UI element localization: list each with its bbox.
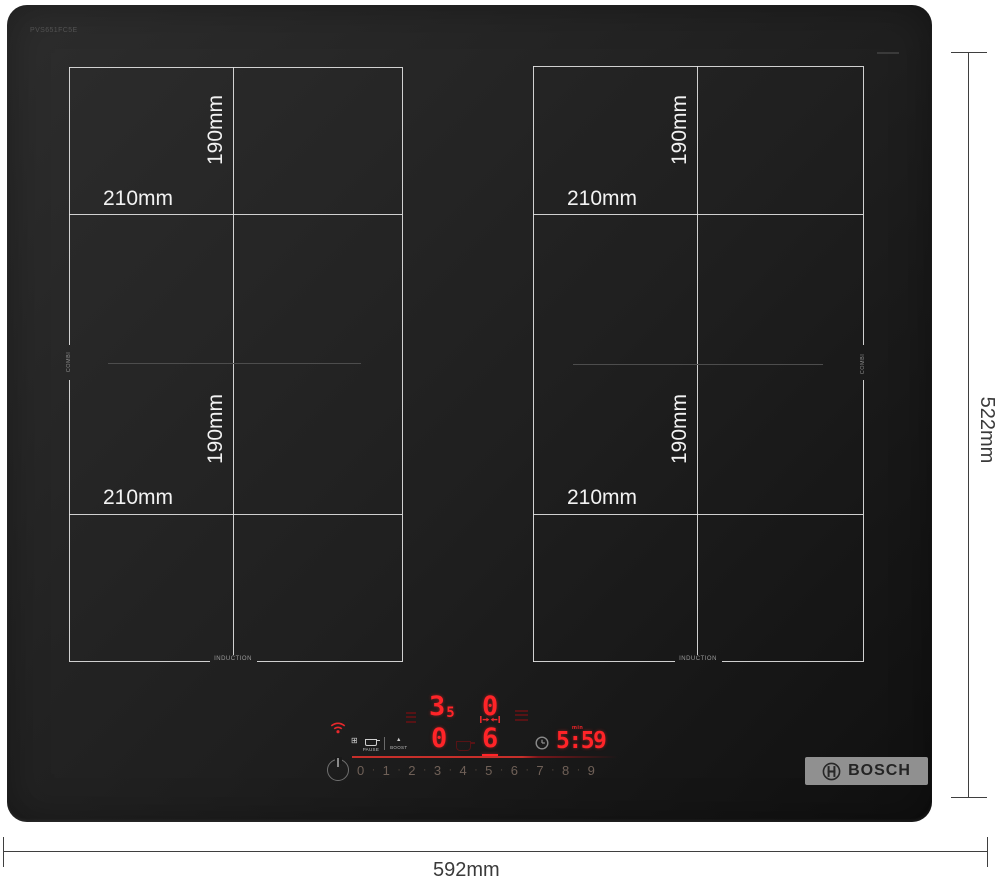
pan-detection-icon [456,741,471,751]
zone-right-bottom-edge-2 [722,661,863,662]
slider-number: 5 [485,763,492,778]
display-front-left-value: 0 [431,725,447,752]
slider-number: 8 [562,763,569,778]
combi-label-right: COMBI [858,349,868,379]
zone-right-center-line [697,66,698,655]
slider-dot: · [474,764,478,776]
zone-left-bottom-edge-2 [257,661,402,662]
slider-number: 6 [511,763,518,778]
slider-number: 1 [383,763,390,778]
slider-number: 4 [460,763,467,778]
zone-front-right-midline [533,514,863,515]
width-dimension-tick-right [987,837,988,867]
combi-bridge-icon [479,715,501,724]
display-rear-left-value: 3 [429,693,445,720]
zone-left-left-edge-upper [69,67,70,345]
clock-icon [535,736,549,750]
zone-left-bottom-edge-1 [69,661,210,662]
zone-rear-left-width-label: 210mm [103,187,173,211]
heat-indicator-left [406,712,416,723]
depth-dimension-line [968,52,969,798]
zone-rear-left-midline [69,214,402,215]
slider-dot: · [372,764,376,776]
slider-dot: · [423,764,427,776]
model-code: PVS651FC5E [30,27,78,34]
function-key-group: ⊞ PAUSE ▲ BOOST [351,736,407,752]
zone-right-right-edge-lower [863,380,864,662]
overall-depth-label: 522mm [975,392,999,468]
zone-rear-left-depth-label: 190mm [204,94,228,166]
zone-left-right-edge [402,67,403,662]
zone-front-right-depth-label: 190mm [668,393,692,465]
display-front-right: 6 [482,725,498,752]
zone-rear-right-width-label: 210mm [567,187,637,211]
zone-right-combi-separator [573,364,823,365]
display-front-right-value: 6 [482,725,498,752]
depth-dimension-tick-bottom [951,797,987,798]
grid-icon: ⊞ [351,736,358,745]
faint-engraving-mark [877,52,899,54]
zone-front-right-width-label: 210mm [567,486,637,510]
power-slider: 0·1·2·3·4·5·6·7·8·9 [357,761,595,779]
width-dimension-line [3,851,988,852]
induction-label-right: INDUCTION [665,656,731,662]
display-rear-left-half-step: 5 [446,706,454,720]
power-icon [327,759,349,781]
slider-number: 9 [588,763,595,778]
control-panel-accent-line [352,756,618,758]
display-rear-left: 3 5 [429,693,455,720]
slider-number: 7 [536,763,543,778]
zone-left-left-edge-lower [69,380,70,661]
wifi-icon [329,720,347,734]
zone-front-left-midline [69,514,402,515]
zone-front-left-depth-label: 190mm [204,393,228,465]
depth-dimension-tick-top [951,52,987,53]
display-front-left: 0 [431,725,447,752]
boost-icon: ▲ [396,736,401,744]
slider-number: 2 [408,763,415,778]
zone-front-left-width-label: 210mm [103,486,173,510]
pause-label: PAUSE [363,747,379,752]
heat-indicator-right [515,710,528,721]
induction-label-left: INDUCTION [200,656,266,662]
slider-dot: · [551,764,555,776]
zone-right-right-edge-upper [863,66,864,345]
pan-icon [365,739,377,746]
timer-display: 5:59 [556,730,605,753]
slider-dot: · [525,764,529,776]
boost-label: BOOST [390,745,407,750]
combi-label-left: COMBI [64,347,74,377]
bosch-symbol-icon [822,762,841,781]
zone-left-top-edge [69,67,402,68]
function-divider [384,737,385,750]
slider-dot: · [397,764,401,776]
width-dimension-tick-left [3,837,4,867]
overall-width-label: 592mm [433,859,500,882]
zone-right-left-edge [533,66,534,662]
zone-rear-right-depth-label: 190mm [668,94,692,166]
slider-dot: · [500,764,504,776]
brand-logo-bar: BOSCH [805,757,928,785]
zone-rear-right-midline [533,214,863,215]
zone-left-combi-separator [108,363,361,364]
brand-name: BOSCH [848,762,911,780]
boost-key: ▲ BOOST [390,736,407,750]
slider-dot: · [577,764,581,776]
pause-key: PAUSE [363,736,379,752]
zone-left-center-line [233,67,234,655]
slider-dot: · [448,764,452,776]
zone-right-bottom-edge-1 [533,661,675,662]
product-dimension-diagram: PVS651FC5E COMBI INDUCTION 210mm 190mm 2… [0,0,1000,886]
slider-number: 0 [357,763,364,778]
hob-glass-surface [7,5,932,822]
slider-number: 3 [434,763,441,778]
